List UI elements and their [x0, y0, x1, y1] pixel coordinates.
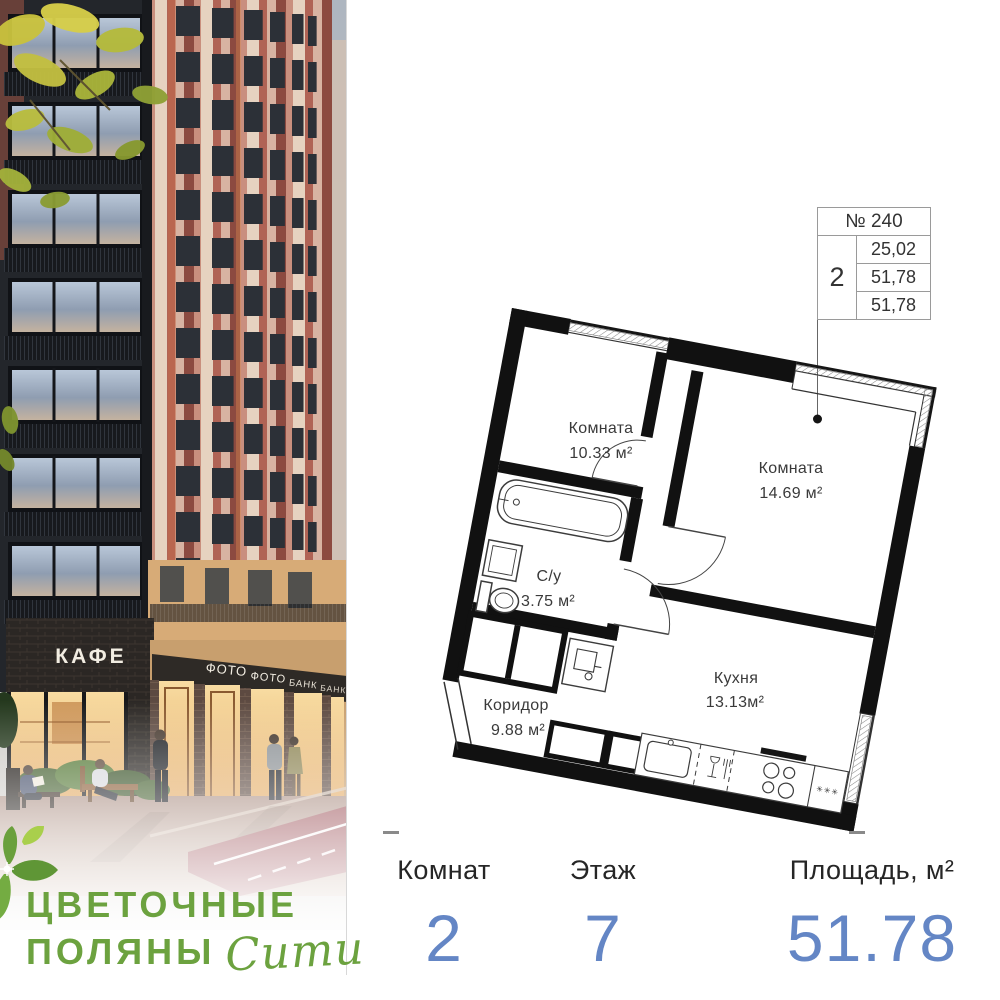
room-area: 10.33 м²	[569, 445, 632, 463]
kitchen-area: 13.13м²	[706, 694, 764, 712]
living-area-value: 25,02	[857, 236, 930, 263]
bathroom-label: С/у	[537, 568, 562, 586]
stat-area: Площадь, м² 51.78	[722, 855, 1000, 976]
total-area-with-balcony-value: 51,78	[857, 291, 930, 319]
tower-left-face	[0, 0, 152, 692]
corridor-area: 9.88 м²	[491, 722, 545, 740]
apartment-number: № 240	[818, 208, 930, 236]
cafe-sign: КАФЕ	[55, 645, 126, 668]
corridor-label: Коридор	[483, 697, 548, 715]
logo: ЦВЕТОЧНЫЕ ПОЛЯНЫ Сити	[26, 886, 364, 970]
entrance-door	[432, 675, 482, 751]
room-label: Комната	[759, 460, 824, 478]
stat-area-label: Площадь, м²	[722, 855, 1000, 886]
total-area-value: 51,78	[857, 263, 930, 291]
stat-floor: Этаж 7	[503, 855, 703, 976]
photo-edge	[346, 0, 347, 975]
logo-line1: ЦВЕТОЧНЫЕ	[26, 886, 364, 923]
logo-script: Сити	[225, 926, 366, 980]
door-bathroom	[614, 569, 679, 634]
apartment-info-table: № 240 2 25,02 51,78 51,78	[817, 207, 931, 320]
sink	[482, 540, 522, 582]
door-room2	[658, 527, 726, 595]
logo-line2: ПОЛЯНЫ	[26, 933, 215, 970]
bathroom-area: 3.75 м²	[521, 593, 575, 611]
dash-mark-right	[849, 831, 865, 834]
room-label: Комната	[569, 420, 634, 438]
floor-plan-drawing: ✳✳✳	[429, 308, 937, 832]
kitchen-label: Кухня	[714, 670, 758, 688]
dash-mark-left	[383, 831, 399, 834]
rooms-count-cell: 2	[818, 236, 857, 319]
apartment-listing-card[interactable]: { "logo": { "line1": "ЦВЕТОЧНЫЕ", "line2…	[0, 0, 1000, 1000]
tower-right-face	[148, 0, 332, 648]
stat-floor-label: Этаж	[503, 855, 703, 886]
room-area: 14.69 м²	[759, 485, 822, 503]
stat-area-value: 51.78	[722, 900, 1000, 976]
washing-machine	[562, 638, 614, 691]
stat-floor-value: 7	[503, 900, 703, 976]
